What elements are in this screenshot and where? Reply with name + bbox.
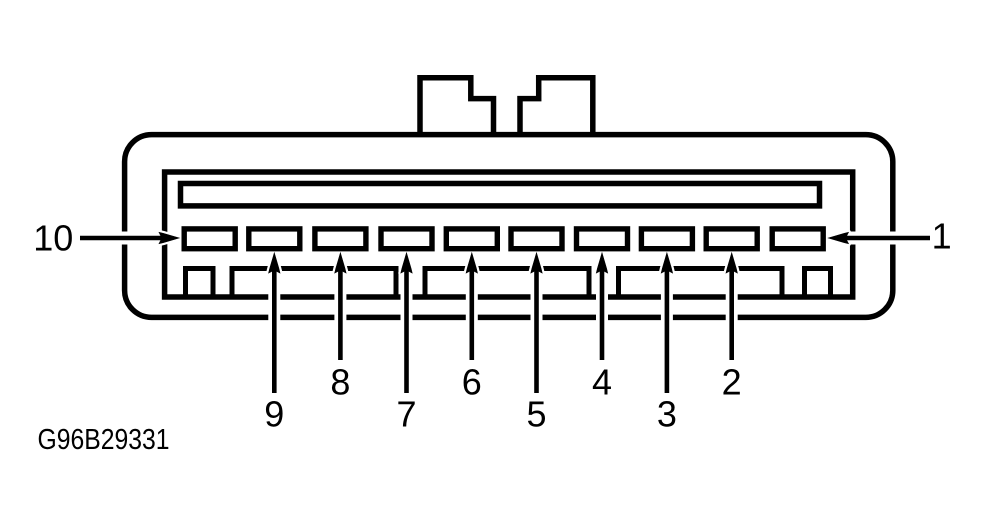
svg-text:10: 10 bbox=[33, 218, 73, 259]
svg-text:7: 7 bbox=[396, 394, 416, 435]
svg-text:1: 1 bbox=[932, 216, 952, 257]
svg-text:5: 5 bbox=[526, 394, 546, 435]
svg-text:G96B29331: G96B29331 bbox=[38, 424, 170, 456]
svg-text:6: 6 bbox=[462, 362, 482, 403]
svg-text:3: 3 bbox=[657, 394, 677, 435]
svg-text:4: 4 bbox=[592, 362, 612, 403]
svg-text:9: 9 bbox=[264, 394, 284, 435]
svg-text:2: 2 bbox=[722, 362, 742, 403]
svg-text:8: 8 bbox=[330, 362, 350, 403]
